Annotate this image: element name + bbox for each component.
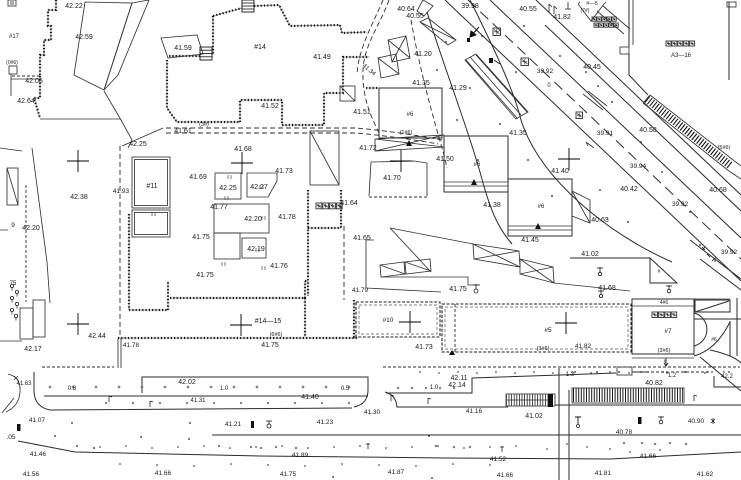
svg-text:(1#6): (1#6): [400, 130, 413, 136]
svg-text:40.45: 40.45: [583, 64, 601, 71]
svg-text:42.38: 42.38: [70, 194, 88, 201]
svg-text:41.70: 41.70: [383, 175, 401, 182]
svg-text:41.16: 41.16: [466, 408, 483, 415]
svg-text:42.11: 42.11: [451, 375, 468, 382]
svg-text:#14—15: #14—15: [255, 318, 282, 325]
svg-text:39.92: 39.92: [537, 68, 554, 75]
svg-text:42.44: 42.44: [88, 333, 106, 340]
svg-text:40.68: 40.68: [709, 187, 727, 194]
svg-text:41.51: 41.51: [353, 109, 371, 116]
svg-text:41.46: 41.46: [30, 451, 47, 458]
svg-text:#14: #14: [254, 44, 266, 51]
svg-text:42.14: 42.14: [448, 382, 466, 389]
svg-text:41.82: 41.82: [553, 14, 571, 21]
svg-text:#6: #6: [711, 337, 717, 343]
svg-text:(6#6): (6#6): [270, 332, 283, 338]
svg-text:41.52: 41.52: [490, 456, 507, 463]
svg-text:#5: #5: [544, 327, 552, 334]
svg-text:41.75: 41.75: [261, 342, 279, 349]
svg-text:41.29: 41.29: [449, 85, 467, 92]
svg-text:41.50: 41.50: [436, 156, 454, 163]
svg-text:A3—16: A3—16: [671, 53, 692, 59]
svg-text:#6: #6: [474, 162, 481, 168]
svg-text:42.06: 42.06: [25, 78, 43, 85]
svg-text:41.40: 41.40: [301, 394, 319, 401]
svg-text:40.64: 40.64: [397, 6, 415, 13]
svg-text:42.27: 42.27: [250, 184, 268, 191]
svg-text:.05: .05: [6, 434, 15, 441]
svg-text:42.19: 42.19: [247, 246, 265, 253]
svg-text:41.59: 41.59: [174, 45, 192, 52]
svg-text:40.58: 40.58: [639, 127, 657, 134]
svg-text:41.73: 41.73: [415, 344, 433, 351]
svg-text:39.91: 39.91: [597, 130, 614, 137]
svg-text:41.81: 41.81: [595, 470, 612, 477]
svg-text:39.92: 39.92: [721, 249, 738, 256]
svg-text:41.93: 41.93: [113, 188, 130, 195]
svg-text:#—5: #—5: [586, 1, 598, 7]
svg-text:1.0: 1.0: [430, 385, 439, 391]
svg-text:9: 9: [11, 222, 15, 229]
svg-text:(3#): (3#): [199, 122, 209, 128]
svg-text:#: #: [658, 269, 661, 275]
svg-text:40.82: 40.82: [645, 380, 663, 387]
svg-text:(7#): (7#): [581, 8, 590, 14]
svg-text:41.77: 41.77: [210, 204, 228, 211]
svg-text:41.49: 41.49: [313, 54, 331, 61]
svg-text:41.75: 41.75: [280, 471, 297, 478]
svg-text:40.55: 40.55: [519, 6, 537, 13]
svg-text:41.63: 41.63: [16, 381, 32, 387]
svg-text:41.75: 41.75: [192, 234, 210, 241]
svg-text:41.61: 41.61: [174, 128, 192, 135]
svg-text:#6: #6: [407, 112, 414, 118]
svg-text:41.89: 41.89: [292, 452, 309, 459]
svg-text:40.42: 40.42: [620, 186, 638, 193]
svg-text:#7: #7: [664, 328, 672, 335]
svg-text:41.45: 41.45: [521, 237, 539, 244]
svg-text:41.76: 41.76: [270, 263, 288, 270]
svg-text:42.20: 42.20: [244, 216, 262, 223]
svg-text:41.78: 41.78: [123, 342, 140, 349]
svg-text:(0#6): (0#6): [6, 60, 18, 66]
svg-text:39.92: 39.92: [672, 201, 689, 208]
svg-text:41.56: 41.56: [23, 471, 40, 478]
svg-text:40.55: 40.55: [406, 13, 424, 20]
svg-text:42.25: 42.25: [219, 185, 237, 192]
svg-text:41.87: 41.87: [388, 469, 405, 476]
svg-text:4#6: 4#6: [660, 300, 669, 306]
svg-text:#10: #10: [383, 317, 394, 324]
svg-text:(3#6): (3#6): [658, 348, 671, 354]
svg-text:41.23: 41.23: [317, 419, 334, 426]
svg-text:41.40: 41.40: [551, 168, 569, 175]
svg-text:42.2: 42.2: [721, 374, 733, 380]
svg-text:40.63: 40.63: [591, 217, 609, 224]
svg-text:41.62: 41.62: [697, 471, 714, 478]
svg-text:42.20: 42.20: [22, 225, 40, 232]
svg-text:#17: #17: [9, 34, 20, 40]
svg-text:42.25: 42.25: [129, 141, 147, 148]
svg-text:75: 75: [10, 281, 17, 287]
svg-text:40.90: 40.90: [688, 418, 705, 425]
svg-text:42.02: 42.02: [178, 379, 196, 386]
svg-text:41.75: 41.75: [449, 286, 467, 293]
svg-text:41.20: 41.20: [414, 51, 432, 58]
svg-text:39.94: 39.94: [630, 163, 647, 170]
svg-text:41.64: 41.64: [340, 200, 358, 207]
svg-text:42.59: 42.59: [75, 34, 93, 41]
svg-text:1.0: 1.0: [220, 386, 229, 392]
svg-text:(3#6): (3#6): [537, 346, 550, 352]
svg-text:41.65: 41.65: [353, 235, 371, 242]
svg-text:41.35: 41.35: [412, 80, 430, 87]
svg-text:41.68: 41.68: [234, 146, 252, 153]
svg-text:41.31: 41.31: [190, 398, 206, 404]
svg-text:41.78: 41.78: [278, 214, 296, 221]
svg-text:41.82: 41.82: [575, 343, 592, 350]
svg-text:41.02: 41.02: [581, 251, 599, 258]
svg-text:41.66: 41.66: [155, 470, 172, 477]
svg-text:42.22: 42.22: [65, 3, 83, 10]
svg-text:42.64: 42.64: [17, 98, 35, 105]
svg-text:41.75: 41.75: [196, 272, 214, 279]
svg-text:41.38: 41.38: [483, 202, 501, 209]
svg-text:#6: #6: [538, 204, 545, 210]
svg-text:42.17: 42.17: [24, 346, 42, 353]
svg-text:41.68: 41.68: [598, 285, 616, 292]
svg-text:41.02: 41.02: [525, 413, 543, 420]
svg-text:41.52: 41.52: [261, 103, 279, 110]
svg-text:41.73: 41.73: [275, 168, 293, 175]
svg-text:41.21: 41.21: [225, 421, 242, 428]
svg-text:40.78: 40.78: [616, 429, 633, 436]
svg-text:41.30: 41.30: [364, 409, 381, 416]
svg-text:41.69: 41.69: [189, 174, 207, 181]
svg-text:1.3: 1.3: [566, 372, 575, 378]
svg-text:1.2: 1.2: [668, 373, 677, 379]
svg-text:39.98: 39.98: [461, 3, 479, 10]
svg-text:#11: #11: [146, 183, 157, 190]
svg-text:41.66: 41.66: [497, 472, 514, 479]
svg-text:41.35: 41.35: [509, 130, 527, 137]
svg-text:41.07: 41.07: [29, 417, 46, 424]
svg-text:(5#6): (5#6): [718, 145, 731, 151]
svg-text:41.72: 41.72: [359, 145, 377, 152]
svg-text:41.66: 41.66: [640, 453, 657, 460]
